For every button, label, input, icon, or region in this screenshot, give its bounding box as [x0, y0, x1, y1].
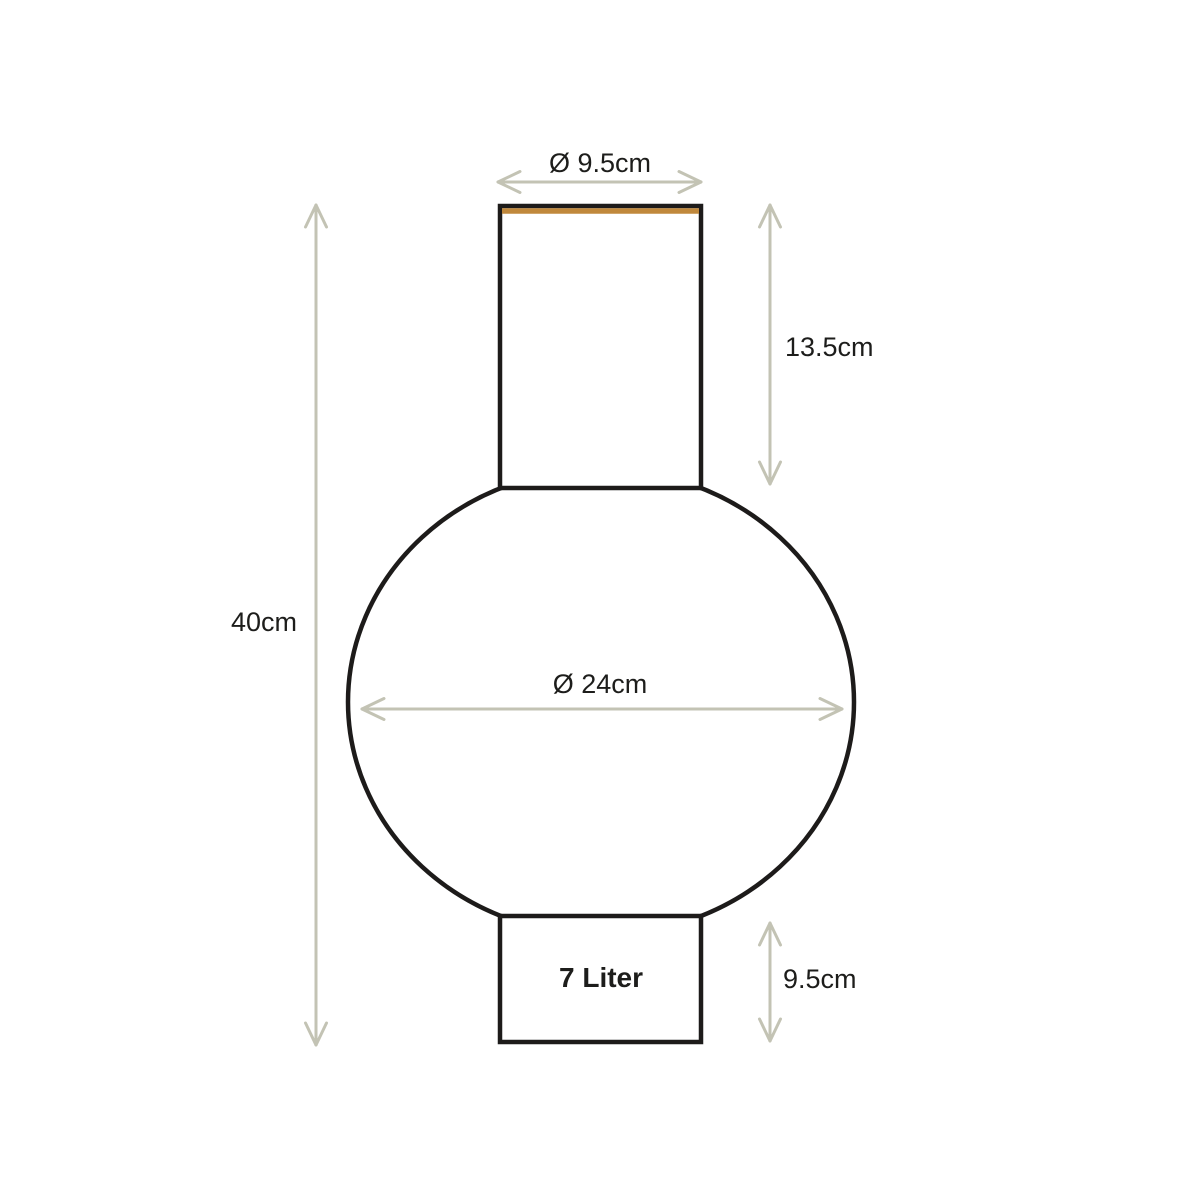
- vase-outline: 7 Liter: [348, 206, 854, 1042]
- dimension-label-base-height: 9.5cm: [783, 964, 857, 994]
- vase-dimension-diagram: 7 Liter Ø 9.5cm13.5cm40cmØ 24cm9.5cm: [0, 0, 1200, 1200]
- dimension-base-height: 9.5cm: [760, 923, 857, 1041]
- capacity-label: 7 Liter: [559, 962, 643, 993]
- dimension-neck-height: 13.5cm: [760, 205, 874, 484]
- dimension-neck-diameter: Ø 9.5cm: [498, 148, 701, 193]
- vase-body: [348, 469, 854, 935]
- dimension-label-neck-height: 13.5cm: [785, 332, 874, 362]
- vase-neck: [500, 206, 701, 488]
- dimension-label-neck-diameter: Ø 9.5cm: [549, 148, 651, 178]
- dimension-label-total-height: 40cm: [231, 607, 297, 637]
- dimension-total-height: 40cm: [231, 205, 327, 1045]
- dimension-label-body-diameter: Ø 24cm: [553, 669, 648, 699]
